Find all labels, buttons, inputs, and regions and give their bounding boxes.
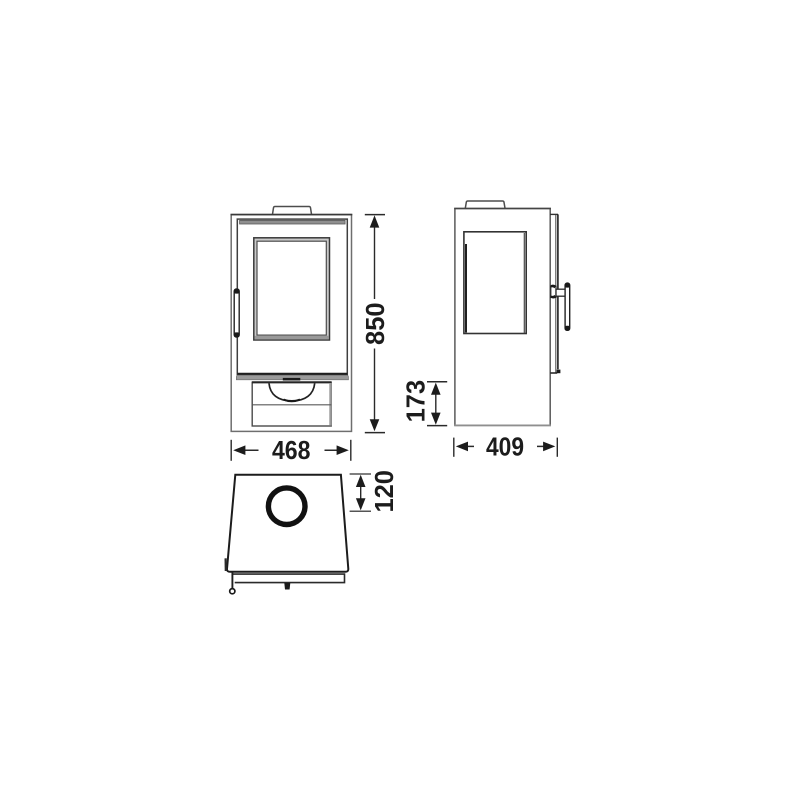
svg-text:468: 468	[272, 435, 311, 465]
svg-text:120: 120	[369, 470, 399, 513]
svg-text:173: 173	[400, 380, 430, 423]
svg-text:409: 409	[486, 431, 524, 461]
svg-text:850: 850	[360, 302, 390, 345]
